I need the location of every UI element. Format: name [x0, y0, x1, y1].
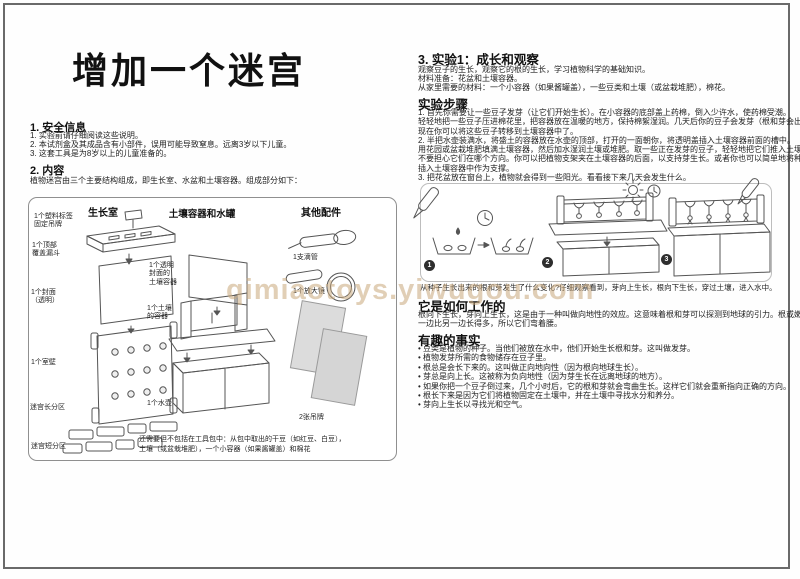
growth-chamber-label-cover: 1个封面 （透明） [31, 289, 59, 306]
step2-number-badge: 2 [542, 257, 553, 268]
fact-item: • 芽向上生长以寻找光和空气。 [418, 400, 791, 409]
steps-illustration-icon [421, 184, 771, 281]
how-it-works-line: 根向下生长，芽向上生长，这是由于一种叫做向地性的效应。这意味着根和芽可以探测到地… [418, 310, 800, 319]
steps-illustration-box: 1 2 3 [420, 183, 772, 282]
step-line: 2. 半把水壶装满水，将盛土的容器放在水壶的顶部，打开的一面朝你，将透明盖插入土… [418, 136, 800, 145]
growth-chamber-label-tag: 1个塑料标签 固定吊牌 [34, 213, 73, 230]
step-line: 不要担心它们在哪个方向。你可以把植物支架夹在土壤容器的后面，以支持芽生长。或者你… [418, 154, 800, 163]
how-it-works-line: 一边比另一边长得多，所以它们弯着腰。 [418, 319, 800, 328]
facts-list: • 豆类是植物的种子。当他们被放在水中，他们开始生长根和芽。这叫做发芽。 • 植… [418, 344, 791, 410]
safety-item: 1. 实验前请仔细阅读这些说明。 [30, 131, 291, 140]
maze-short-partition-label: 迷宫短分区 [31, 443, 66, 451]
water-tank-label: 1个水壶 [147, 400, 172, 408]
safety-list: 1. 实验前请仔细阅读这些说明。 2. 本试剂盒及其成品含有小部件，误用可能导致… [30, 131, 291, 159]
how-it-works-text: 根向下生长，芽向上生长，这是由于一种叫做向地性的效应。这意味着根和芽可以探测到地… [418, 310, 800, 329]
magnifier-label: 1个放大镜 [293, 288, 325, 296]
page-title: 增加一个迷宫 [72, 42, 306, 94]
experiment-desc: 观察豆子的生长，观察它的根的生长，学习植物科学的基础知识。 [418, 65, 730, 74]
dropper-icon [287, 228, 362, 254]
soil-cover-label: 1个透明 封面的 土壤容器 [149, 262, 177, 287]
illustration-caption: 从种子生长出来的根和芽发生了什么变化?仔细观察看到，芽向上生长，根向下生长，穿过… [420, 284, 780, 293]
accessories-title: 其他配件 [291, 204, 351, 219]
tags-label: 2张吊牌 [299, 414, 324, 422]
parts-diagram-box: 生长室 土壤容器和水罐 其他配件 [28, 197, 397, 461]
experiment-desc: 从家里需要的材料：一个小容器（如果酱罐盖），一些豆类和土壤（或盆栽堆肥），棉花。 [418, 83, 730, 92]
contents-intro: 植物迷宫由三个主要结构组成，即生长室、水盆和土壤容器。组成部分如下： [30, 176, 302, 185]
steps-list: 1. 首先你需要让一些豆子发芽（让它们开始生长）。在小容器的底部盖上药棉，倒入少… [418, 108, 800, 182]
fact-item: • 如果你把一个豆子倒过来，几个小时后，它的根和芽就会弯曲生长。这样它们就会重新… [418, 382, 791, 391]
fact-item: • 豆类是植物的种子。当他们被放在水中，他们开始生长根和芽。这叫做发芽。 [418, 344, 791, 353]
step1-number-badge: 1 [424, 260, 435, 271]
step-line: 3. 把花盆放在窗台上，植物就会得到一些阳光。看看接下来几天会发生什么。 [418, 173, 800, 182]
safety-item: 3. 这套工具是为8岁以上的儿童准备的。 [30, 149, 291, 158]
step-line: 1. 首先你需要让一些豆子发芽（让它们开始生长）。在小容器的底部盖上药棉，倒入少… [418, 108, 800, 117]
fact-item: • 芽总是向上长。这被称为负向地性（因为芽生长在远离地球的地方）。 [418, 372, 791, 381]
growth-chamber-label-funnel: 1个顶部 覆盖漏斗 [32, 242, 60, 259]
fact-item: • 植物发芽所需的食物储存在豆子里。 [418, 353, 791, 362]
step-line: 现在你可以将这些豆子转移到土壤容器中了。 [418, 127, 800, 136]
growth-chamber-label-wall: 1个室壁 [31, 359, 56, 367]
step-line: 轻轻地把一些豆子压进棉花里，把容器放在温暖的地方，保持棉絮湿润。几天后你的豆子会… [418, 117, 800, 126]
not-included-note-line1: 还需要但不包括在工具包中：从包中取出的干豆（如红豆、白豆）， [139, 436, 346, 444]
step-line: 插入土壤容器中作为支撑。 [418, 164, 800, 173]
tag-cards-icon [291, 300, 373, 412]
soil-container-label: 1个土壤 的容器 [147, 305, 172, 322]
fact-item: • 根总是会长下来的。这叫做正向地向性（因为根向地球生长）。 [418, 363, 791, 372]
maze-long-partition-label: 迷宫长分区 [30, 404, 65, 412]
instruction-sheet-page: qimiaotoys.yiwugou.com 增加一个迷宫 1. 安全信息 1.… [0, 0, 800, 579]
experiment-intro: 观察豆子的生长，观察它的根的生长，学习植物科学的基础知识。 材料准备：花盆和土壤… [418, 65, 730, 93]
soil-water-diagram-icon [167, 253, 277, 428]
not-included-note-line2: 土壤（或盆栽堆肥），一个小容器（如果酱罐盖）和棉花 [139, 446, 311, 454]
step3-number-badge: 3 [661, 254, 672, 265]
